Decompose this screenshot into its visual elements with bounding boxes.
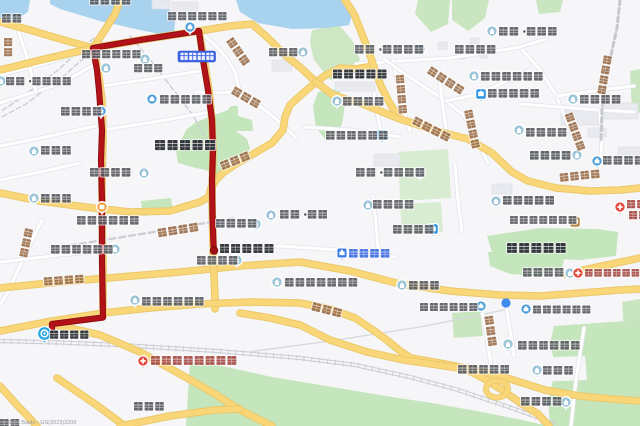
- svg-text:© 2024 Baidu - GS(2023)3206: © 2024 Baidu - GS(2023)3206: [2, 419, 76, 426]
